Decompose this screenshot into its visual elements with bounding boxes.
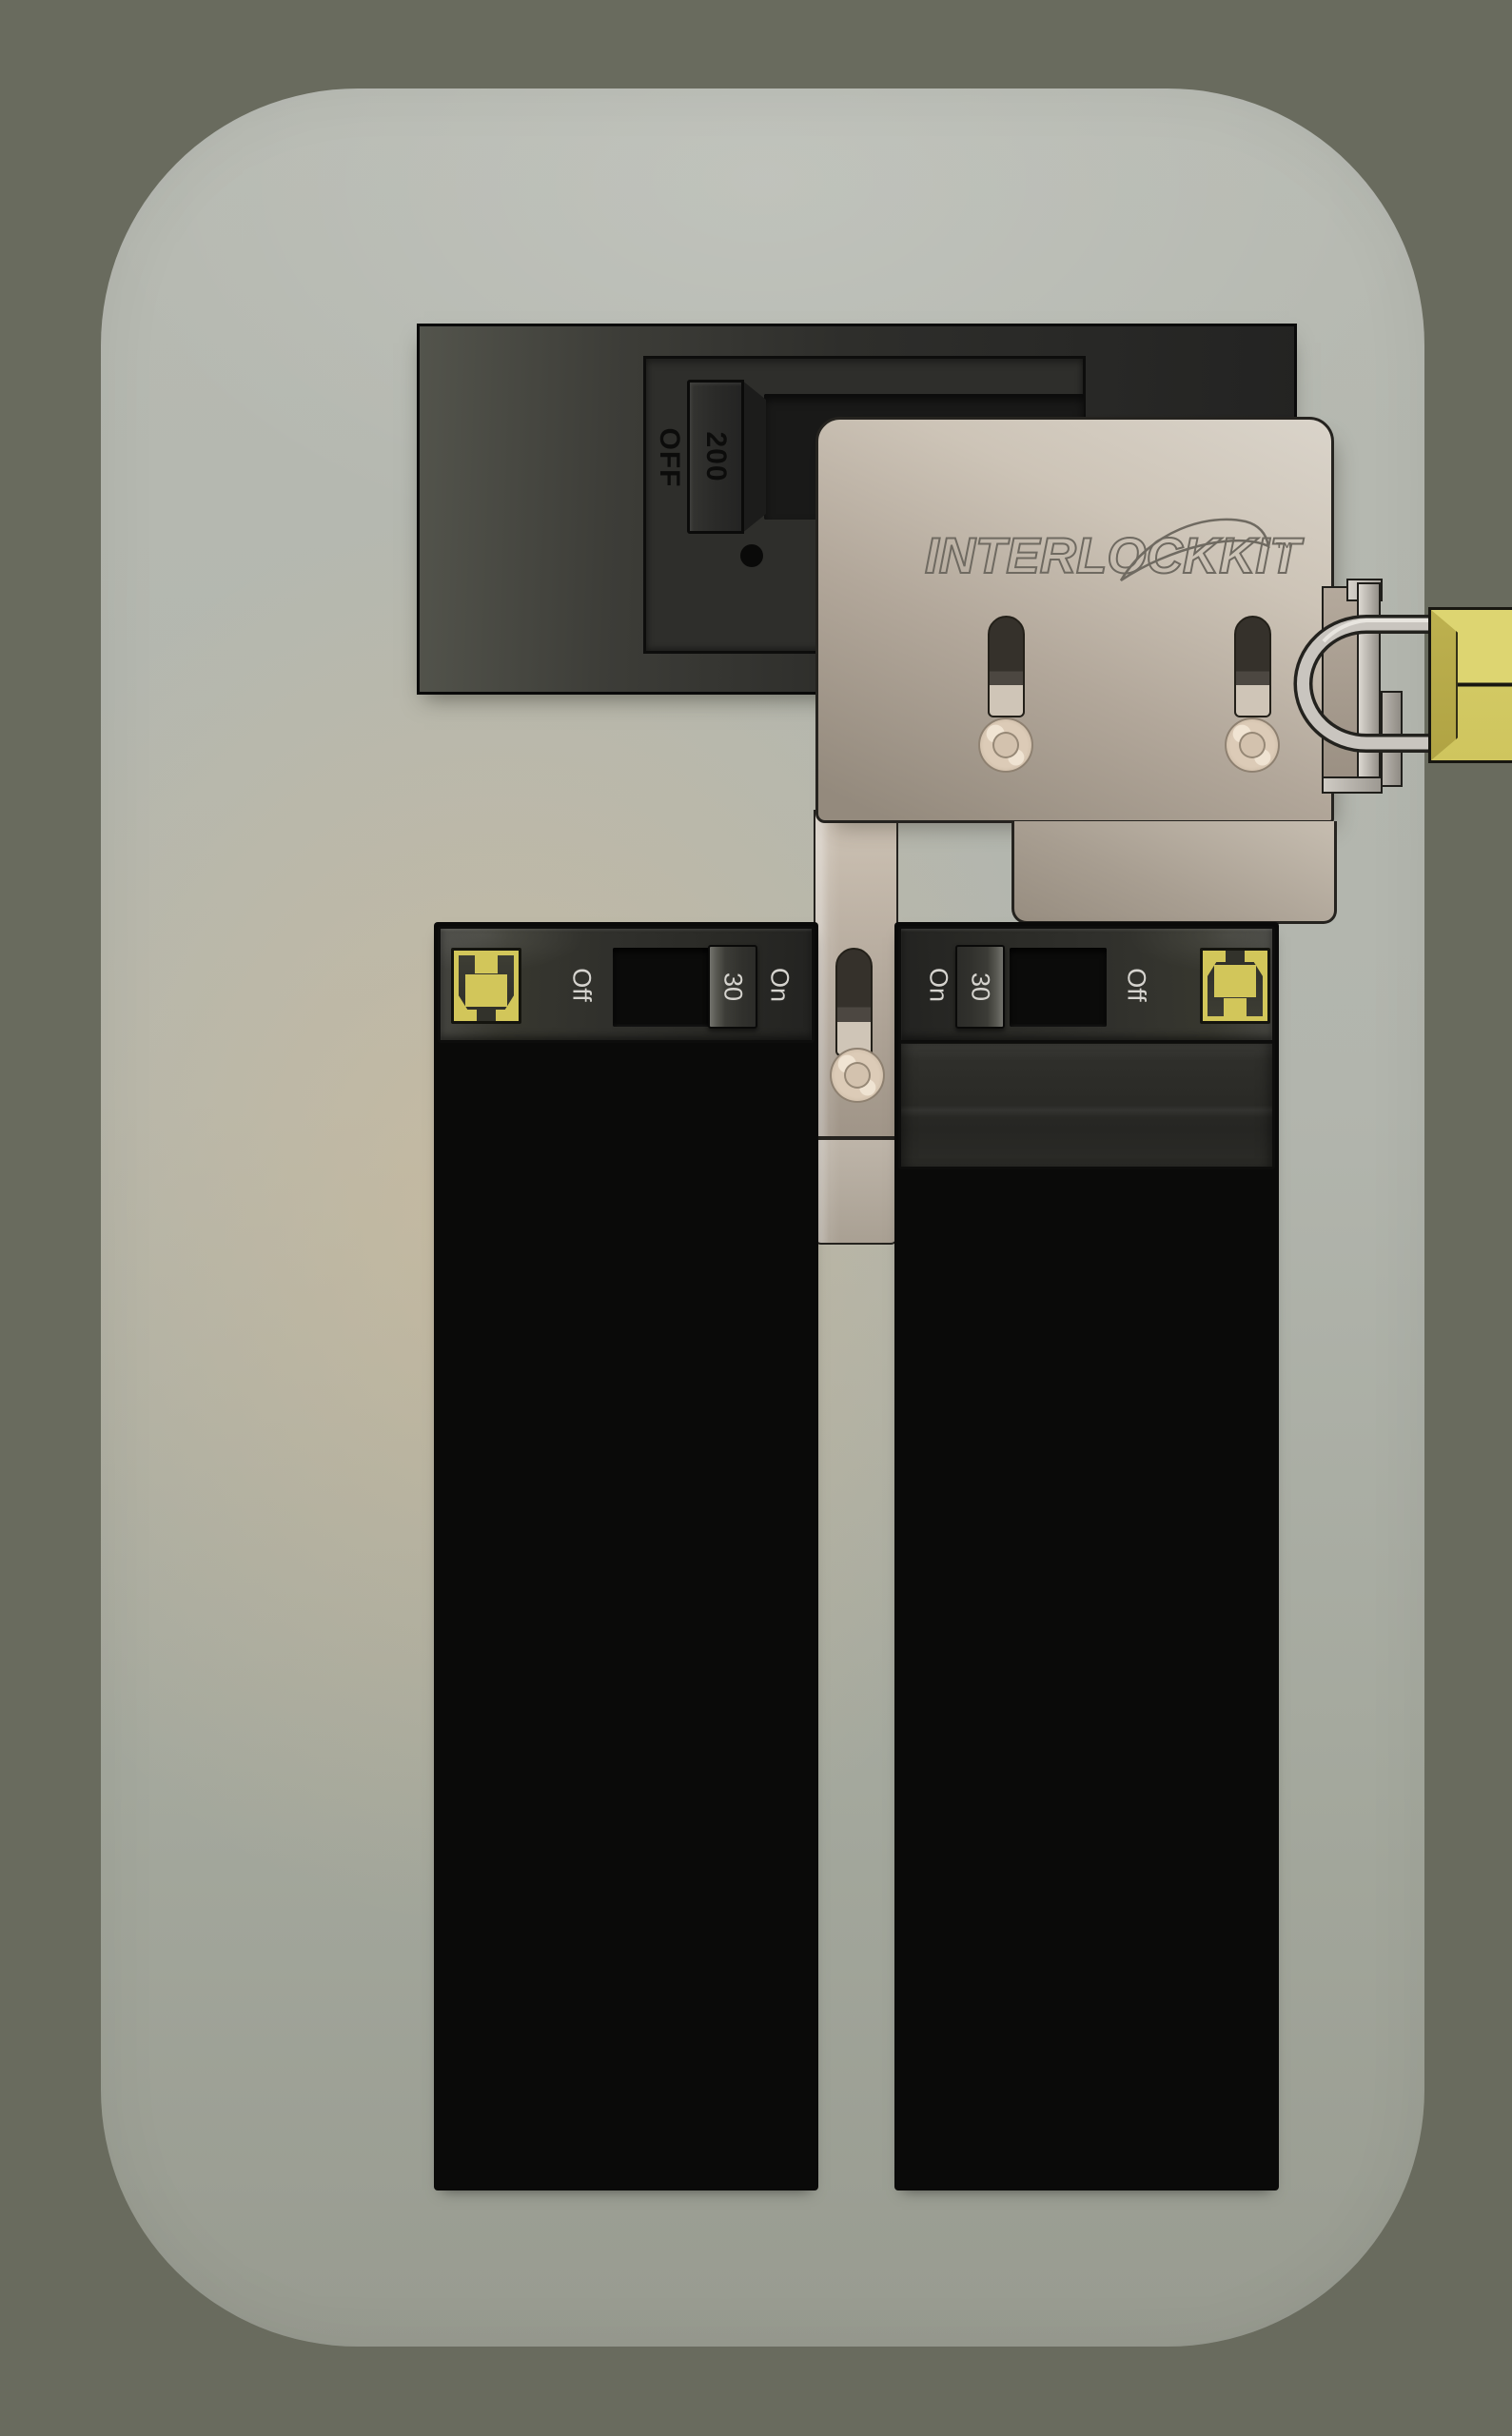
state-label: On xyxy=(765,968,795,1002)
padlock-shackle xyxy=(1281,598,1447,764)
interlock-strip-lower xyxy=(814,1138,898,1245)
state-label: On xyxy=(924,968,953,1002)
interlock-strip-upper xyxy=(814,810,898,1138)
brand-logo-text: INTERLOCKKIT xyxy=(925,530,1301,587)
amp-rating-label: 30 xyxy=(966,972,995,1001)
main-breaker-handle-bevel xyxy=(741,380,766,534)
breaker-single: On30Off xyxy=(898,926,1275,1043)
panel-face: 200 OFF INTERLOCKKIT ™ xyxy=(101,88,1424,2347)
padlock-body[interactable] xyxy=(1428,607,1512,763)
hasp-cap-bottom xyxy=(1322,776,1383,794)
interlock-plate-extension xyxy=(1011,821,1337,924)
left-breaker-column: Off30OnOff30OnOff30OnOff30OnOff30OnOff30… xyxy=(434,922,818,2190)
handle-slot xyxy=(1010,948,1107,1027)
strip-slot xyxy=(835,948,873,1056)
logo-neck xyxy=(475,955,498,973)
main-breaker-rating-label: 200 xyxy=(699,431,732,481)
main-breaker-off-label: OFF xyxy=(653,428,685,488)
strip-screw xyxy=(830,1048,885,1103)
plate-screw-left xyxy=(978,717,1033,773)
logo-core xyxy=(465,974,507,1007)
plate-slot-left xyxy=(988,616,1025,717)
right-breaker-column: On30OffOn30OffOn30OffOn30OffOn30OffOn30O… xyxy=(894,922,1279,2190)
amp-rating-label: 30 xyxy=(718,972,748,1001)
state-label: Off xyxy=(1122,968,1151,1002)
state-label: Off xyxy=(567,968,597,1002)
breaker-lower-pole xyxy=(901,1040,1272,1167)
breaker-single: Off30On xyxy=(438,926,815,1043)
breaker-handle[interactable]: 30 xyxy=(708,945,757,1029)
test-button-dot xyxy=(740,544,763,567)
logo-foot xyxy=(1226,951,1245,963)
plate-screw-right xyxy=(1225,717,1280,773)
logo-neck xyxy=(1224,998,1247,1016)
breaker-handle[interactable]: 30 xyxy=(955,945,1005,1029)
interlock-plate: INTERLOCKKIT ™ xyxy=(815,417,1334,823)
square-d-logo-icon xyxy=(1200,948,1270,1024)
breaker-panel-illustration: 200 OFF INTERLOCKKIT ™ xyxy=(0,0,1512,2436)
trademark-symbol: ™ xyxy=(1275,540,1293,560)
square-d-logo-icon xyxy=(451,948,521,1024)
handle-slot xyxy=(613,948,710,1027)
plate-slot-right xyxy=(1234,616,1271,717)
logo-core xyxy=(1214,965,1256,997)
logo-foot xyxy=(477,1009,496,1021)
